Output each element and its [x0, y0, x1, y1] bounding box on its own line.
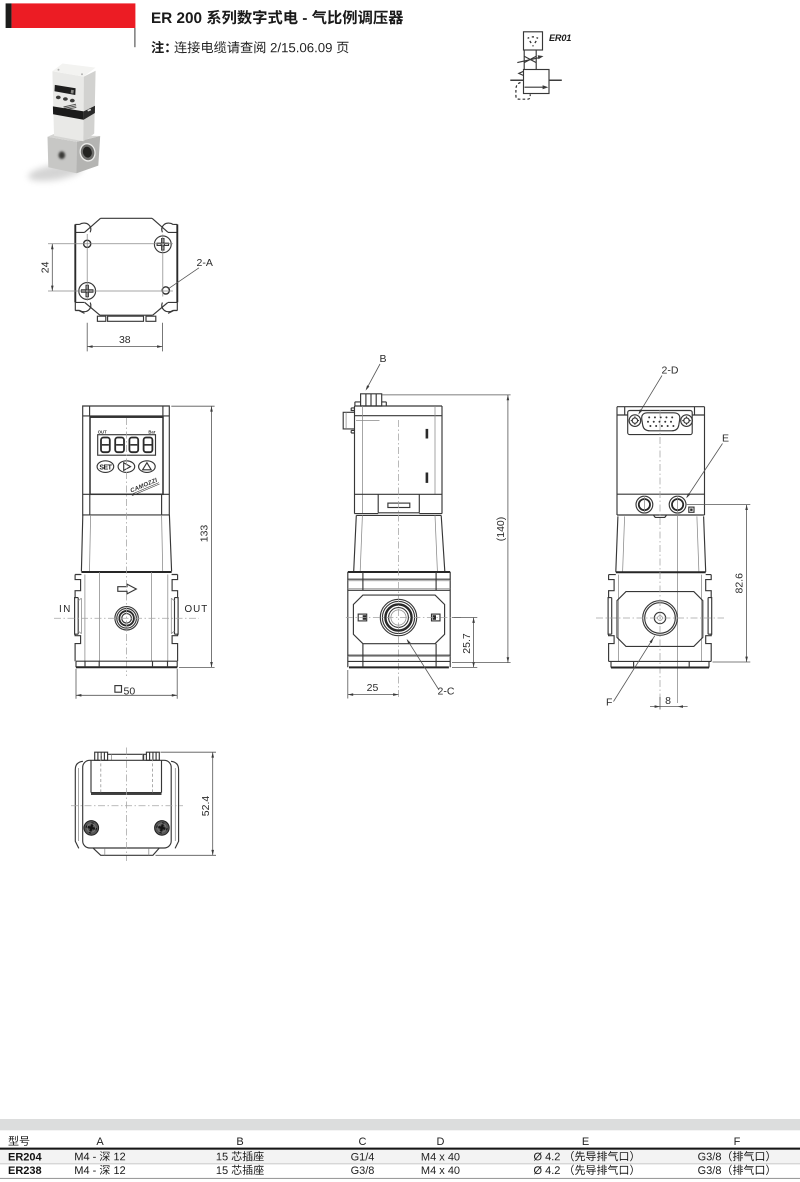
- svg-text:OUT: OUT: [98, 429, 107, 434]
- svg-text:F: F: [606, 697, 612, 709]
- svg-text:C: C: [359, 1136, 367, 1148]
- svg-text:24: 24: [40, 261, 52, 273]
- svg-text:25.7: 25.7: [461, 633, 473, 654]
- svg-text:B: B: [380, 353, 387, 365]
- svg-text:8: 8: [665, 695, 671, 707]
- svg-text:ER204: ER204: [8, 1151, 43, 1163]
- svg-text:2-D: 2-D: [662, 365, 679, 377]
- svg-text:F: F: [734, 1136, 741, 1148]
- svg-text:G1/4: G1/4: [351, 1151, 375, 1163]
- svg-text:25: 25: [367, 682, 379, 694]
- svg-text:SET: SET: [99, 464, 112, 471]
- svg-text:OUT: OUT: [185, 604, 209, 615]
- svg-text:G3/8: G3/8: [351, 1165, 375, 1177]
- svg-text:38: 38: [119, 334, 131, 346]
- svg-text:E: E: [722, 433, 729, 445]
- svg-text:Bar: Bar: [148, 429, 155, 434]
- svg-text:52.4: 52.4: [200, 796, 212, 817]
- svg-text:ER238: ER238: [8, 1165, 42, 1177]
- svg-text:82.6: 82.6: [734, 573, 746, 594]
- svg-text:E: E: [582, 1136, 589, 1148]
- svg-text:50: 50: [124, 685, 136, 697]
- svg-text:B: B: [236, 1136, 243, 1148]
- svg-text:D: D: [437, 1136, 445, 1148]
- svg-text:A: A: [96, 1136, 104, 1148]
- svg-text:M4 x 40: M4 x 40: [421, 1151, 460, 1163]
- svg-text:2-C: 2-C: [438, 686, 455, 698]
- svg-text:M4 x 40: M4 x 40: [421, 1165, 460, 1177]
- svg-text:(140): (140): [495, 517, 507, 542]
- svg-text:ER01: ER01: [549, 33, 571, 43]
- svg-text:2-A: 2-A: [197, 257, 213, 269]
- svg-text:IN: IN: [59, 604, 72, 615]
- svg-text:133: 133: [199, 525, 211, 543]
